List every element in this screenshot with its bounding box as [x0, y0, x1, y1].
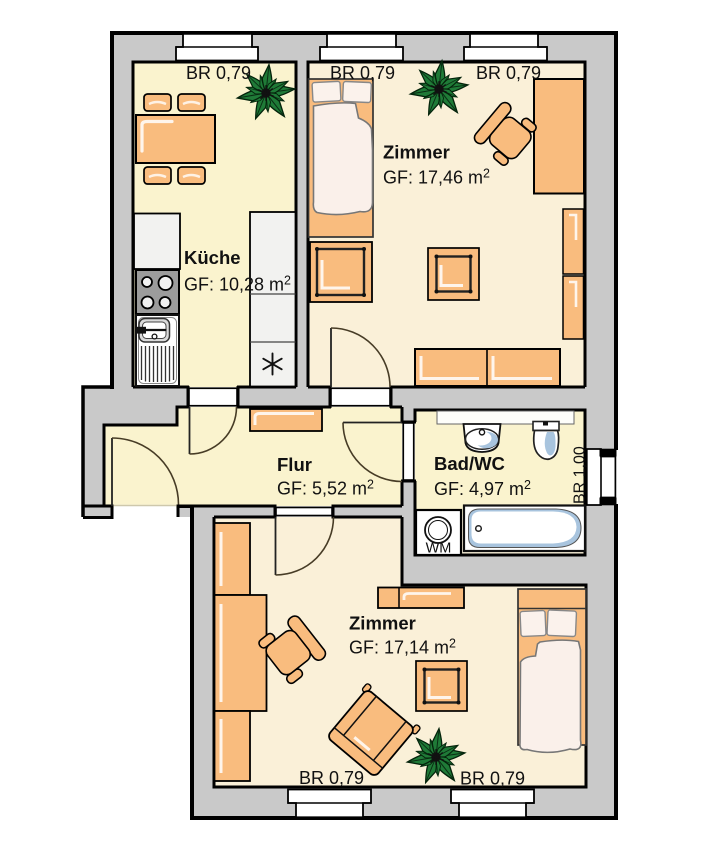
- svg-text:BR 0,79: BR 0,79: [330, 63, 395, 83]
- svg-text:Bad/WC: Bad/WC: [434, 453, 505, 474]
- svg-text:WM: WM: [426, 541, 452, 557]
- svg-text:BR 1,00: BR 1,00: [572, 446, 589, 504]
- svg-text:Küche: Küche: [184, 247, 241, 268]
- svg-text:Zimmer: Zimmer: [383, 142, 450, 163]
- svg-text:GF: 4,97 m2: GF: 4,97 m2: [434, 478, 531, 499]
- svg-text:Flur: Flur: [277, 454, 312, 475]
- svg-text:GF: 17,46 m2: GF: 17,46 m2: [383, 167, 490, 188]
- svg-text:GF: 5,52 m2: GF: 5,52 m2: [277, 478, 374, 499]
- svg-text:BR 0,79: BR 0,79: [299, 768, 364, 788]
- svg-text:GF: 17,14 m2: GF: 17,14 m2: [349, 637, 456, 658]
- svg-text:BR 0,79: BR 0,79: [186, 63, 251, 83]
- svg-text:Zimmer: Zimmer: [349, 613, 416, 634]
- svg-text:BR 0,79: BR 0,79: [476, 63, 541, 83]
- svg-text:BR 0,79: BR 0,79: [460, 769, 525, 789]
- svg-text:GF: 10,28 m2: GF: 10,28 m2: [184, 274, 291, 295]
